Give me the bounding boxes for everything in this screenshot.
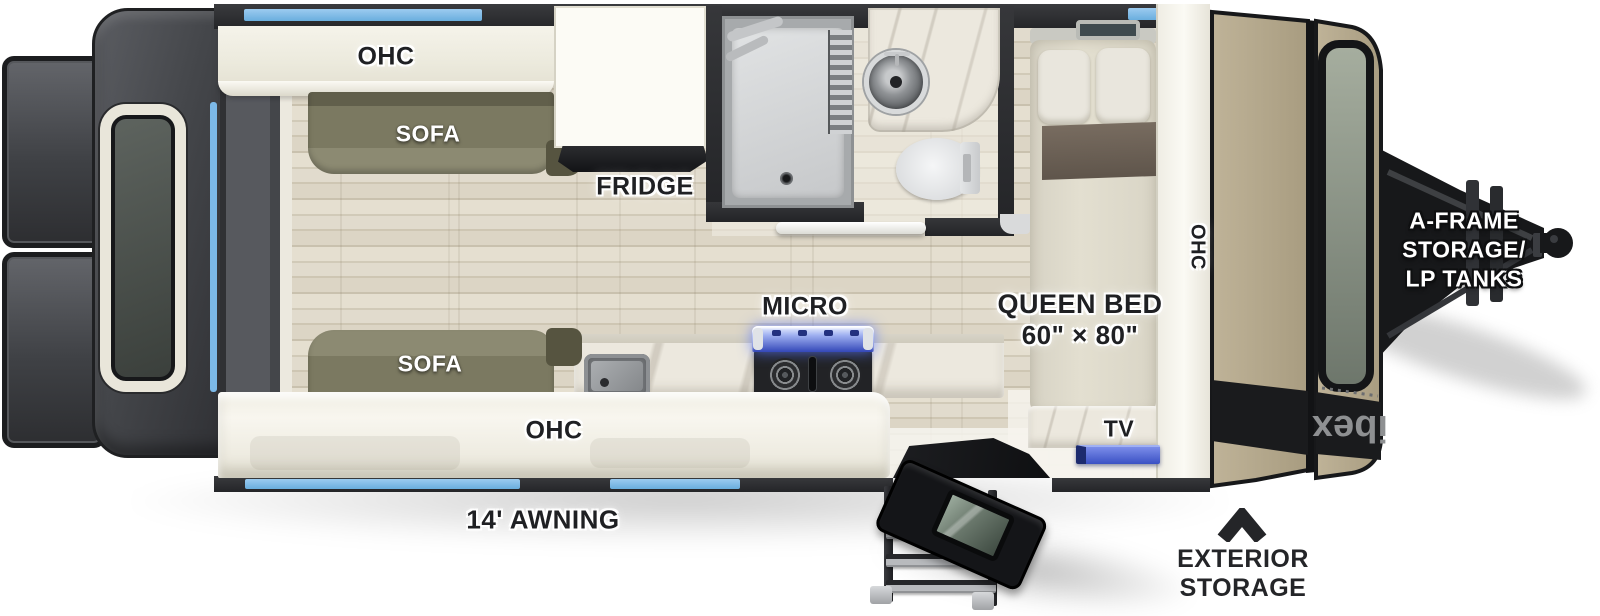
brand-logo: ibex [1312, 407, 1388, 449]
fridge [554, 6, 706, 148]
rear-cargo-door-top [2, 56, 106, 248]
cabinet-recess [590, 438, 750, 468]
chevron-up-icon [1216, 508, 1268, 542]
label-exterior-storage: EXTERIOR STORAGE [1177, 545, 1309, 603]
bathroom-wall-right [998, 6, 1014, 236]
label-sofa-bottom: SOFA [398, 351, 463, 378]
shower-accordion-door [828, 30, 852, 134]
label-queen-bed-line2: 60" × 80" [997, 320, 1162, 351]
label-aframe-storage: A-FRAME STORAGE/ LP TANKS [1402, 207, 1526, 294]
label-awning: 14' AWNING [466, 505, 619, 536]
label-queen-bed: QUEEN BED 60" × 80" [997, 289, 1162, 351]
pillow [1038, 50, 1090, 124]
bathroom-wall-left [706, 6, 722, 222]
tv-cabinet [1028, 406, 1160, 448]
cabinet-recess [250, 436, 460, 470]
label-queen-bed-line1: QUEEN BED [997, 289, 1162, 320]
label-ohc-top: OHC [357, 43, 414, 72]
window-strip-bottom-mid [610, 479, 740, 489]
label-sofa-top: SOFA [396, 121, 461, 148]
step-foot [972, 592, 994, 610]
bathroom-sliding-door [776, 222, 926, 234]
sofa-bottom-armrest [546, 328, 582, 366]
front-window [1322, 44, 1370, 388]
burner-icon [828, 358, 862, 392]
rear-window [100, 104, 186, 392]
hitch-coupler [1543, 228, 1573, 258]
range-handle [808, 356, 817, 392]
label-aframe-line2: STORAGE/ [1402, 236, 1526, 265]
fridge-open-door [558, 146, 708, 172]
label-fridge: FRIDGE [596, 173, 693, 202]
range-knob [798, 330, 807, 336]
label-aframe-line3: LP TANKS [1402, 265, 1526, 294]
bed-throw-blanket [1042, 122, 1156, 180]
range-knob [824, 330, 833, 336]
label-ohc-bottom: OHC [525, 417, 582, 446]
burner-icon [768, 358, 802, 392]
range-knob [772, 330, 781, 336]
bathroom-corner-trim [1000, 214, 1030, 234]
shower-drain [780, 172, 793, 185]
toilet-hinge [963, 154, 971, 182]
label-exterior-line1: EXTERIOR [1177, 545, 1309, 574]
label-exterior-line2: STORAGE [1177, 574, 1309, 603]
bathroom-sink-drain [890, 76, 902, 88]
step-foot [870, 586, 892, 604]
front-cap: ibex [1212, 12, 1388, 486]
window-strip-bottom-left [245, 479, 520, 489]
range-knob [850, 330, 859, 336]
rear-accent-window-strip [210, 102, 217, 392]
window-strip-top-left [244, 9, 482, 21]
label-tv: TV [1104, 416, 1134, 443]
rear-cargo-door-bottom [2, 252, 106, 448]
label-ohc-front: OHC [1186, 224, 1209, 270]
faucet-icon [884, 52, 910, 56]
floorplan-canvas: ibex OHC SOFA FRIDGE MICRO QUEEN BED 60"… [0, 0, 1600, 616]
kitchen-sink-drain [600, 378, 609, 387]
label-aframe-line1: A-FRAME [1402, 207, 1526, 236]
bed-window [1076, 20, 1140, 40]
tv [1076, 445, 1160, 464]
label-micro: MICRO [762, 293, 848, 322]
pillow [1096, 48, 1150, 124]
